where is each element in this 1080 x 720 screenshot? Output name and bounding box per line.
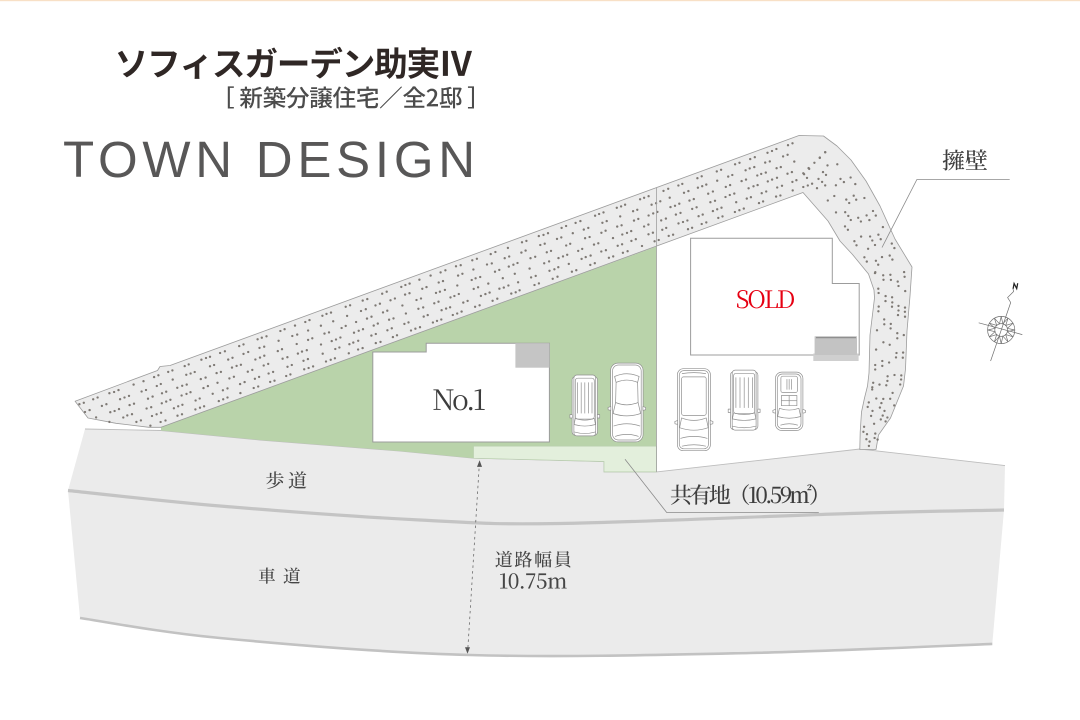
svg-text:TOWN DESIGN: TOWN DESIGN — [63, 131, 480, 188]
